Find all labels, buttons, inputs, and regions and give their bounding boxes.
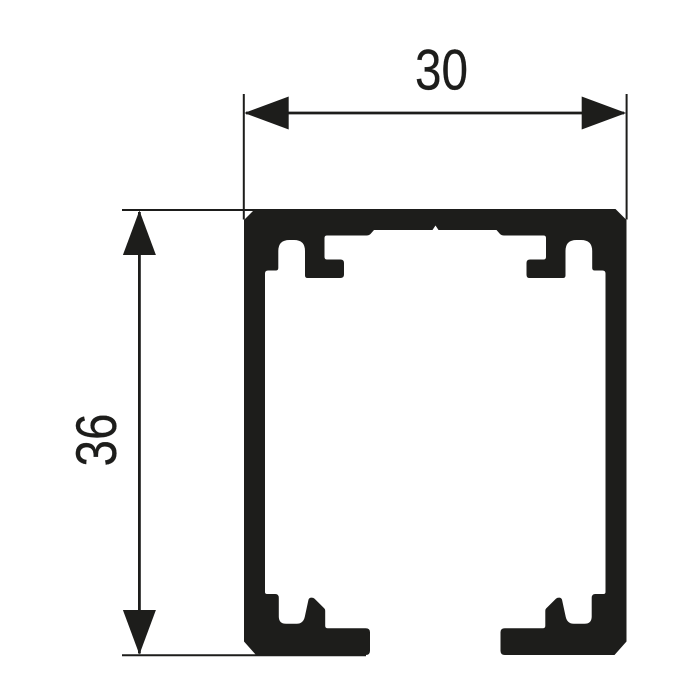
svg-text:36: 36 xyxy=(65,414,129,467)
svg-text:30: 30 xyxy=(415,39,468,103)
